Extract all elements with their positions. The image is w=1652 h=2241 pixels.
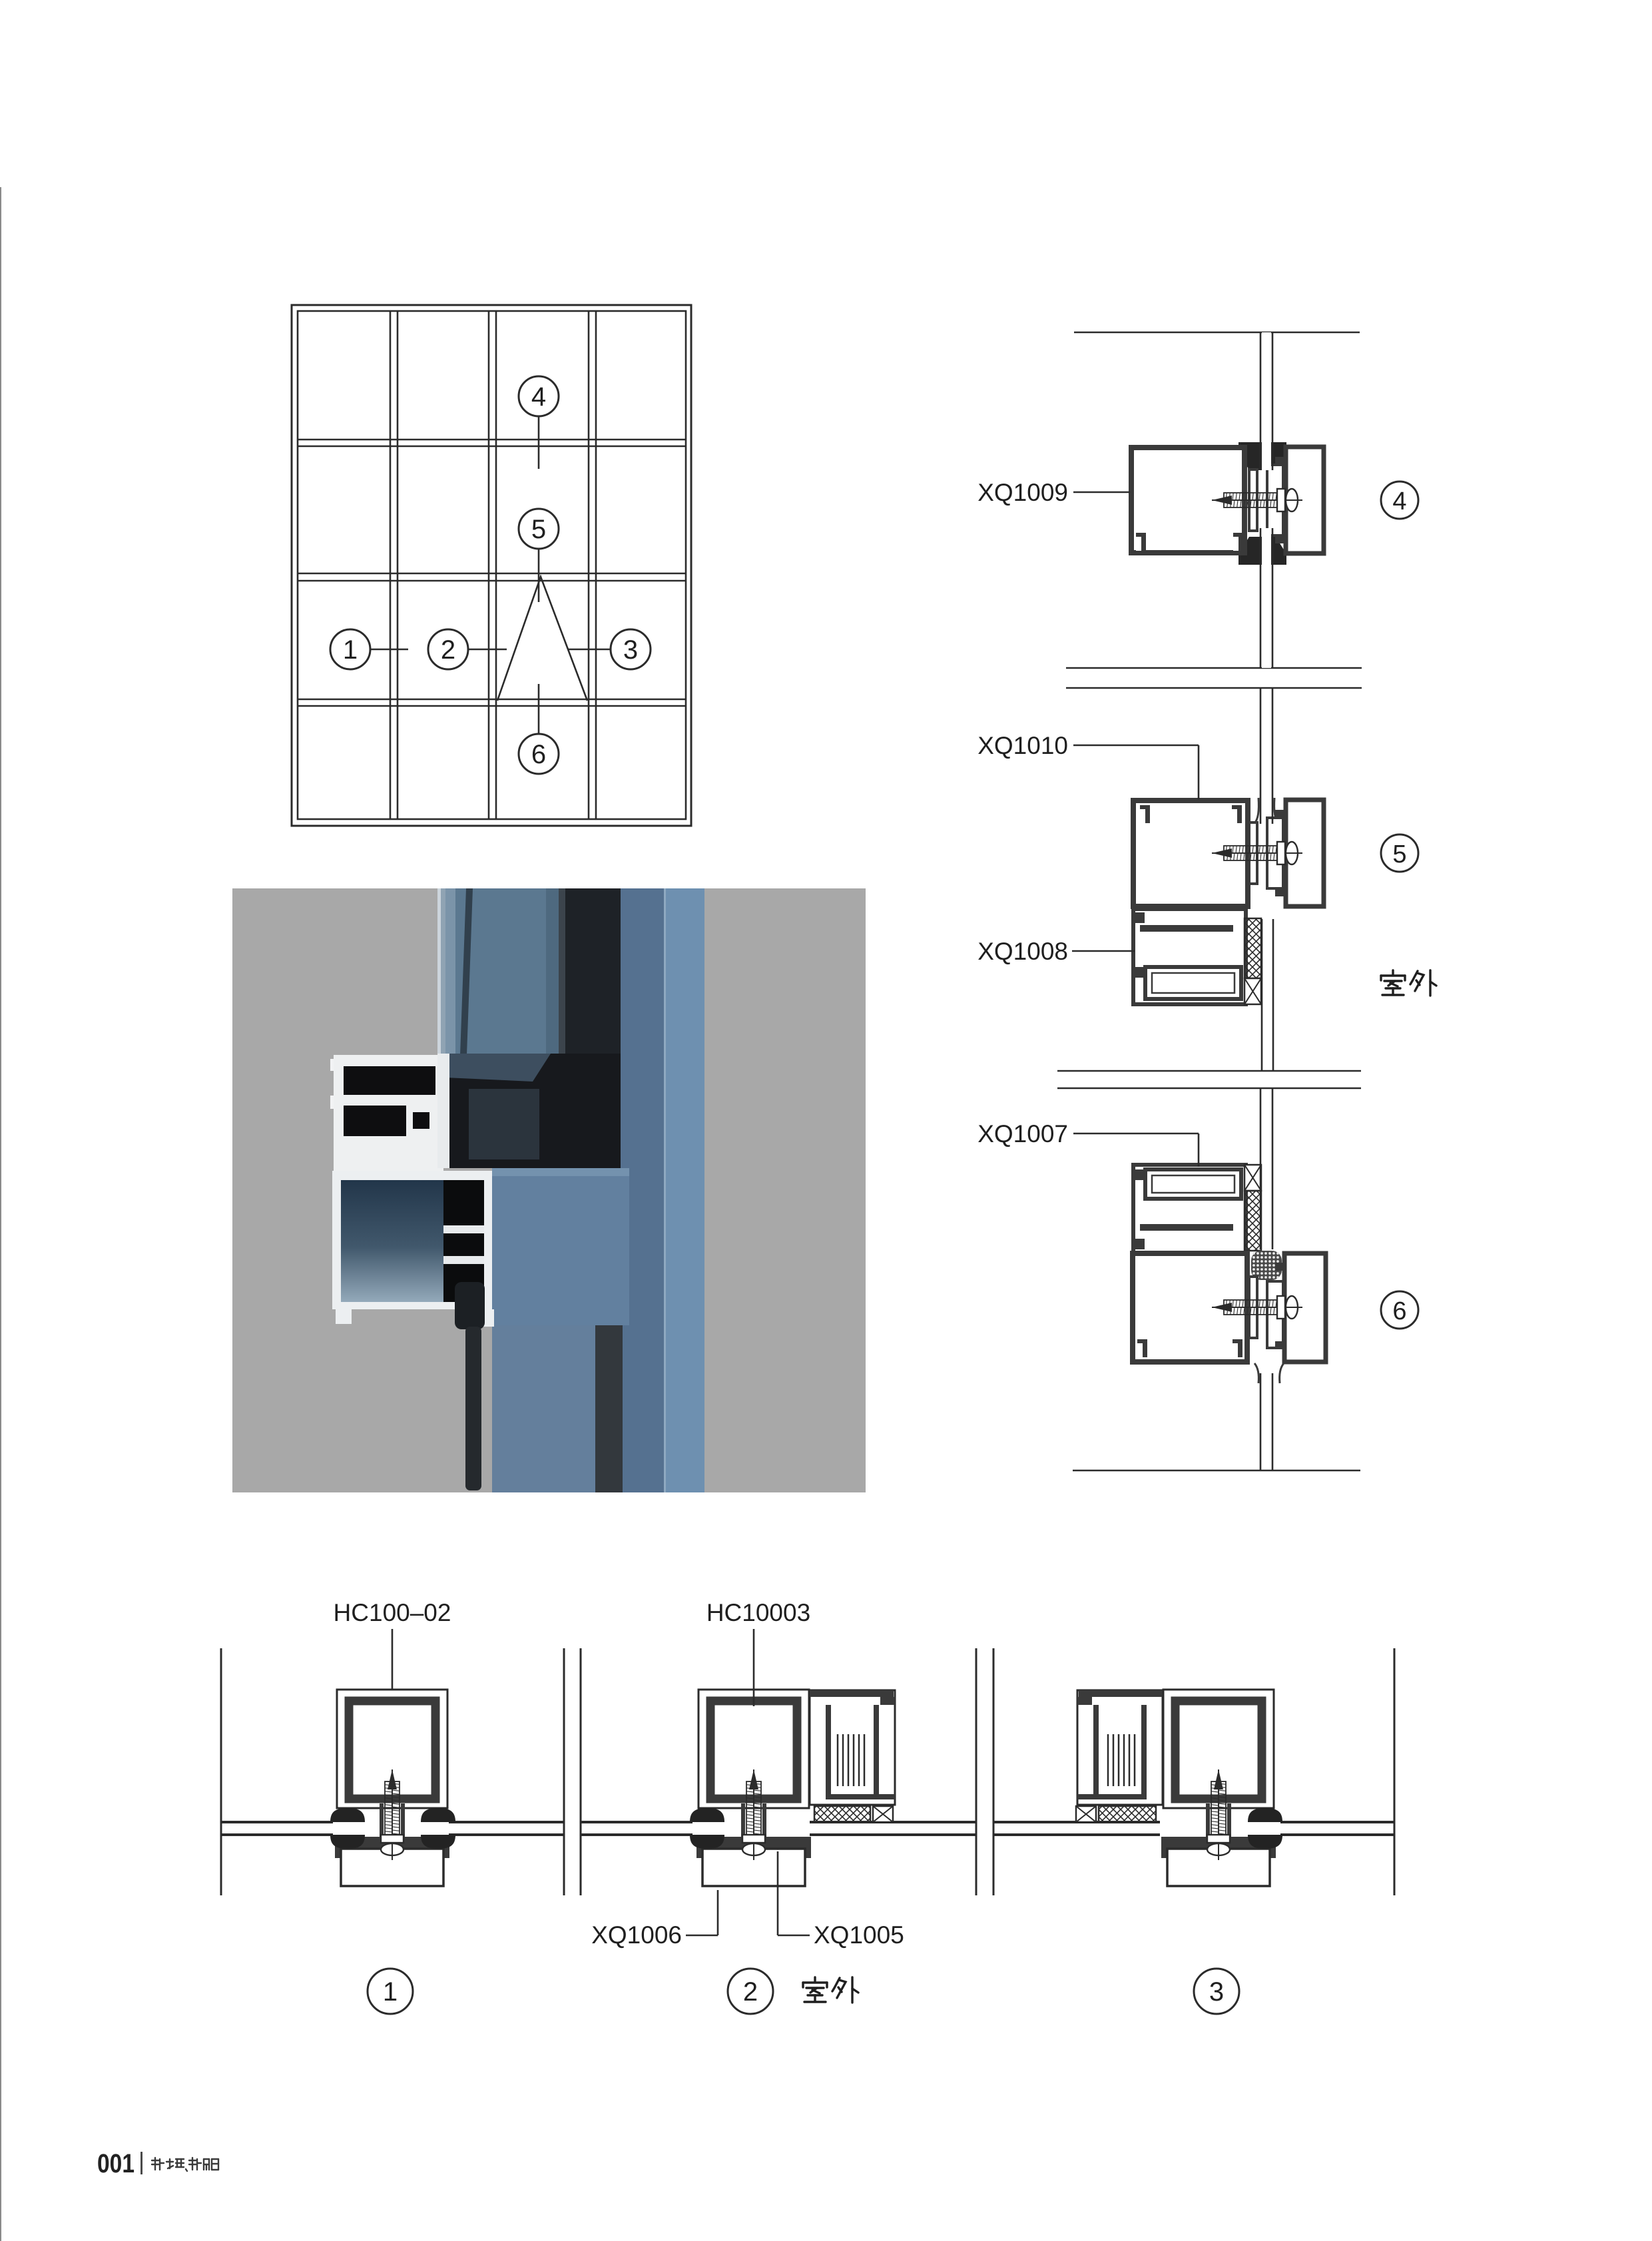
svg-text:6: 6 xyxy=(531,740,546,769)
svg-text:4: 4 xyxy=(1392,487,1406,515)
svg-text:HC10003: HC10003 xyxy=(706,1599,810,1626)
svg-text:XQ1009: XQ1009 xyxy=(977,479,1068,506)
svg-text:HC100–02: HC100–02 xyxy=(334,1599,451,1626)
svg-text:XQ1008: XQ1008 xyxy=(977,938,1068,965)
svg-text:XQ1010: XQ1010 xyxy=(977,732,1068,759)
svg-text:XQ1007: XQ1007 xyxy=(977,1120,1068,1147)
svg-text:3: 3 xyxy=(623,635,638,665)
svg-text:5: 5 xyxy=(1392,840,1406,868)
svg-text:2: 2 xyxy=(441,635,455,665)
svg-text:5: 5 xyxy=(531,515,546,544)
svg-text:XQ1006: XQ1006 xyxy=(591,1921,682,1949)
svg-text:3: 3 xyxy=(1209,1977,1224,2007)
svg-text:2: 2 xyxy=(743,1977,758,2007)
svg-text:4: 4 xyxy=(531,382,546,412)
svg-text:1: 1 xyxy=(343,635,358,665)
svg-text:001: 001 xyxy=(97,2149,135,2178)
svg-text:1: 1 xyxy=(383,1977,398,2007)
svg-text:6: 6 xyxy=(1392,1297,1406,1325)
svg-text:XQ1005: XQ1005 xyxy=(814,1921,904,1949)
